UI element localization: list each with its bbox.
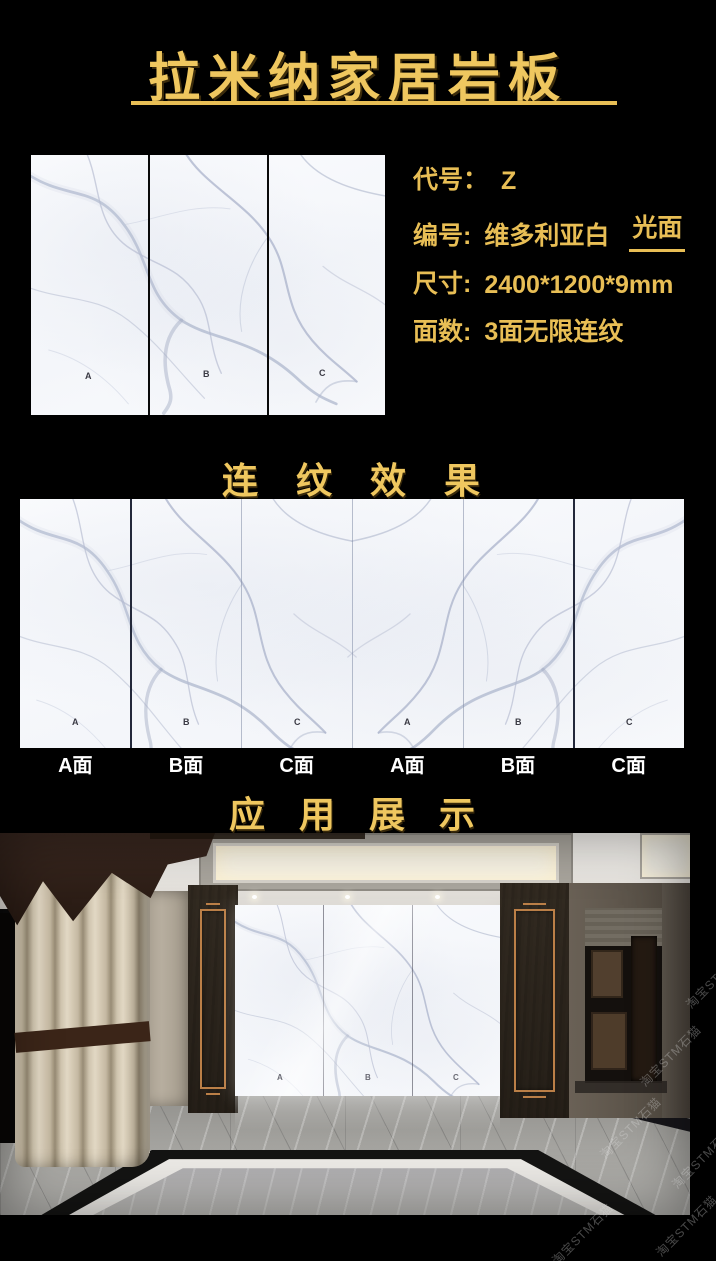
face-label: C面 xyxy=(573,749,684,778)
spec-value: Z xyxy=(501,167,516,196)
wall-letter: C xyxy=(453,1073,459,1082)
cabinet-upper xyxy=(591,950,623,998)
slab-letter: A xyxy=(85,371,92,381)
spec-list: 代号： Z 编号: 维多利亚白 光面 尺寸: 2400*1200*9mm 面数:… xyxy=(413,160,685,348)
face-label: C面 xyxy=(241,749,352,778)
wall-letter: B xyxy=(365,1073,371,1082)
downlight xyxy=(345,895,350,899)
pelmet-line xyxy=(150,833,365,839)
feature-marble-wall: A B C xyxy=(235,905,500,1096)
slab-preview-image: A B C xyxy=(31,155,385,415)
face-label: A面 xyxy=(20,749,131,778)
wood-panel-left xyxy=(188,885,238,1113)
spec-row-faces: 面数: 3面无限连纹 xyxy=(413,312,685,348)
section-title-continuous: 连 纹 效 果 xyxy=(0,452,716,504)
spec-row-size: 尺寸: 2400*1200*9mm xyxy=(413,264,685,300)
spec-label: 尺寸: xyxy=(413,264,471,300)
wall-floor-reflection xyxy=(235,1096,500,1130)
spec-value: 3面无限连纹 xyxy=(484,312,623,348)
spec-value: 维多利亚白 xyxy=(484,216,609,252)
banner-letter: B xyxy=(515,717,522,727)
room-photo: A B C xyxy=(0,833,690,1215)
panel-divider xyxy=(573,499,575,748)
panel-divider xyxy=(148,155,150,415)
wall-letter: A xyxy=(277,1073,283,1082)
panel-divider xyxy=(267,155,269,415)
slab-letter: C xyxy=(319,368,326,378)
ceiling-light-panel xyxy=(213,843,559,883)
face-label: A面 xyxy=(352,749,463,778)
section-title-application: 应 用 展 示 xyxy=(0,786,716,838)
doorway-opening xyxy=(585,908,662,1083)
title-underline xyxy=(131,101,617,105)
ceiling-light-coffer-right xyxy=(640,833,690,879)
banner-letter: A xyxy=(404,717,411,727)
face-label: B面 xyxy=(131,749,242,778)
gloss-reflection xyxy=(235,905,500,1096)
downlight xyxy=(252,895,257,899)
page-title: 拉米纳家居岩板 xyxy=(0,36,716,111)
panel-divider xyxy=(130,499,132,748)
slab-letter: B xyxy=(203,369,210,379)
face-label-row: A面 B面 C面 A面 B面 C面 xyxy=(20,749,684,778)
panel-divider xyxy=(463,499,464,748)
cabinet-lower xyxy=(591,1012,627,1070)
banner-letter: C xyxy=(626,717,633,727)
spec-value: 2400*1200*9mm xyxy=(484,271,673,300)
banner-letter: A xyxy=(72,717,79,727)
face-label: B面 xyxy=(463,749,574,778)
downlight xyxy=(435,895,440,899)
panel-divider xyxy=(352,499,353,748)
poster: 拉米纳家居岩板 A B C 代号： Z 编号: 维多利亚白 光面 尺寸: 240… xyxy=(0,0,716,1261)
wood-panel-right xyxy=(500,883,569,1118)
banner-letter: B xyxy=(183,717,190,727)
spec-finish-underlined: 光面 xyxy=(629,208,685,252)
curtain-tieback xyxy=(14,1021,150,1053)
banner-letter: C xyxy=(294,717,301,727)
banner-image: A B C A B C xyxy=(20,499,684,748)
panel-divider xyxy=(241,499,242,748)
spec-label: 面数: xyxy=(413,312,471,348)
spec-label: 编号: xyxy=(413,216,471,252)
spec-row-number: 编号: 维多利亚白 光面 xyxy=(413,208,685,252)
gold-trim xyxy=(514,909,555,1092)
spec-label: 代号： xyxy=(413,160,488,196)
spec-row-code: 代号： Z xyxy=(413,160,685,196)
gold-trim xyxy=(200,909,226,1089)
